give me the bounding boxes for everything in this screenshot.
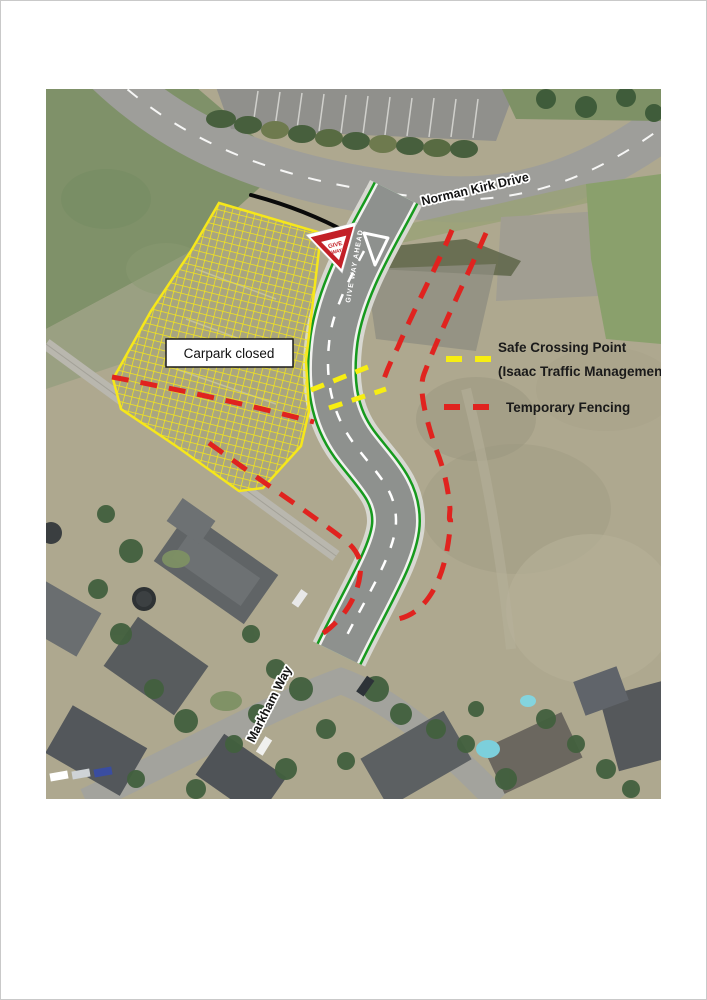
plan-page: GIVE WAY AHEAD	[0, 0, 707, 1000]
svg-text:Carpark closed: Carpark closed	[184, 346, 275, 361]
aerial-map: GIVE WAY AHEAD	[46, 89, 661, 799]
legend-safe-crossing-label-line2: (Isaac Traffic Management)	[498, 364, 661, 379]
legend-safe-crossing-label-line1: Safe Crossing Point	[498, 340, 627, 355]
traffic-management-map: GIVE WAY AHEAD	[46, 89, 661, 799]
carpark-closed-label: Carpark closed	[166, 339, 293, 367]
legend-temporary-fencing-label: Temporary Fencing	[506, 400, 630, 415]
